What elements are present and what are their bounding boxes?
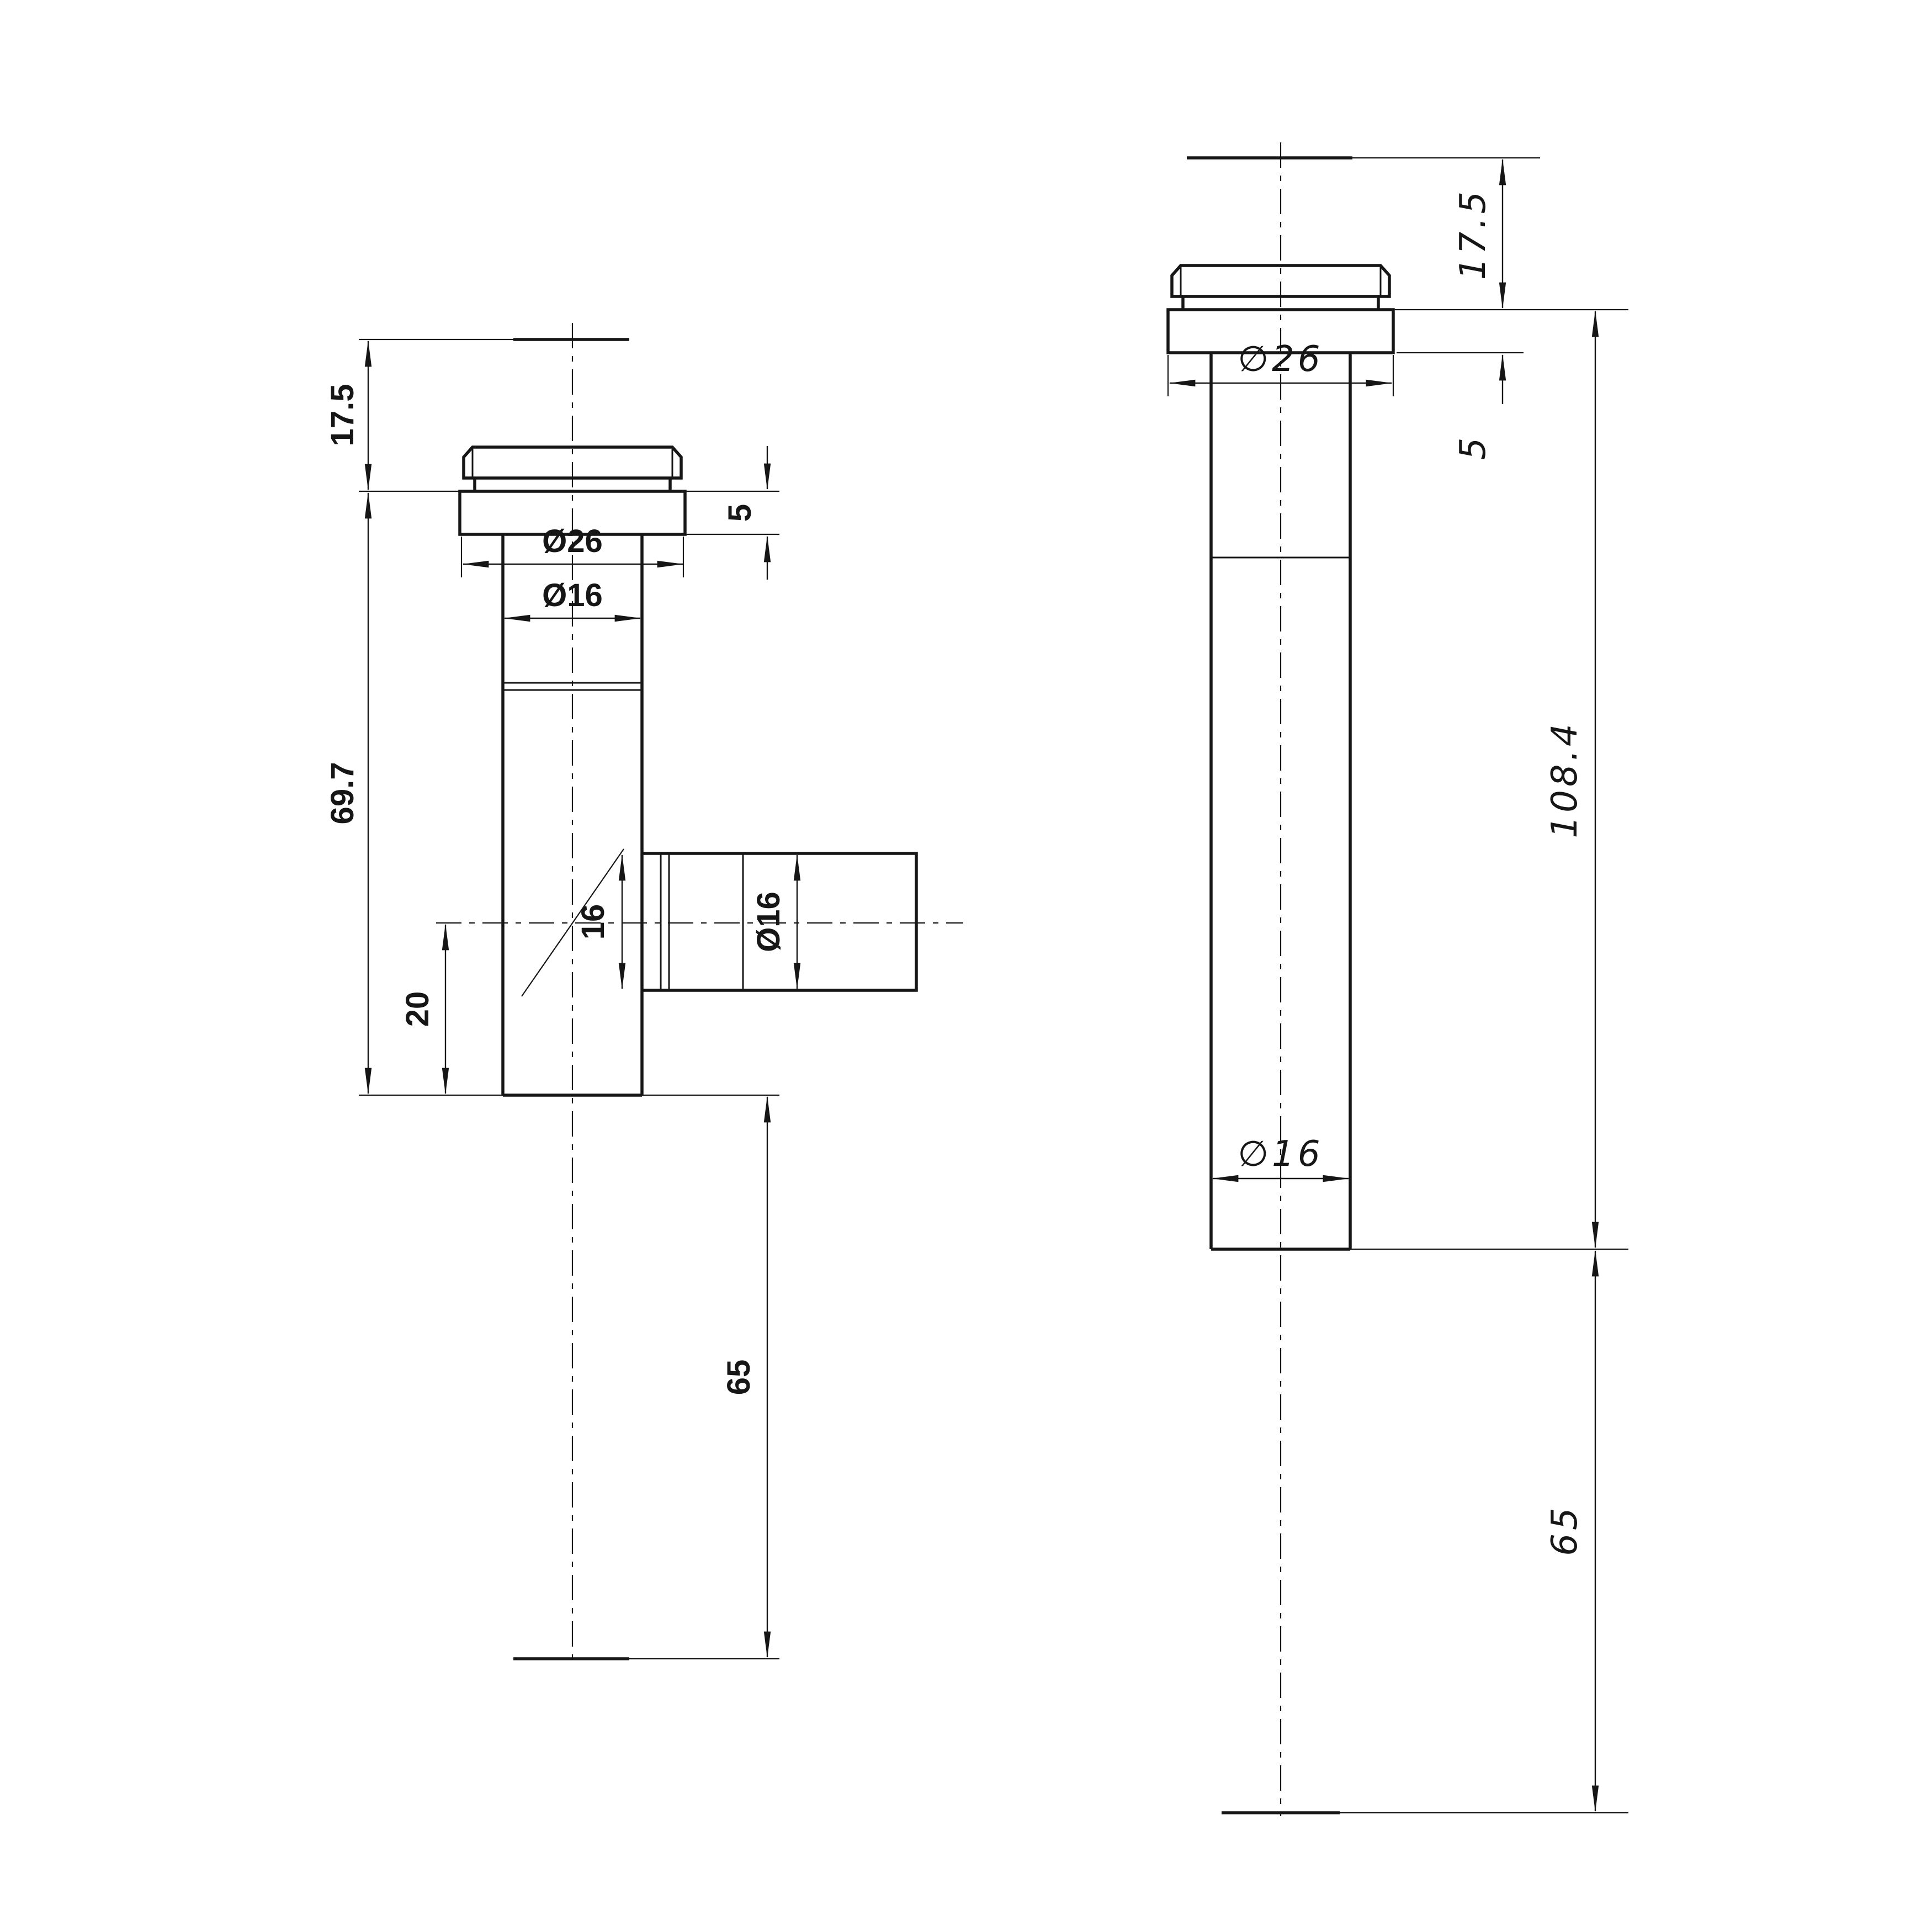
right-dim-flange-diameter-label: ∅26 [1238,339,1323,380]
left-view: 17.5 69.7 5 Ø26 Ø16 16 [325,323,963,1660]
left-dim-branch-diameter-label: Ø16 [751,891,787,952]
technical-drawing-sheet: 17.5 69.7 5 Ø26 Ø16 16 [0,0,1932,1932]
left-dim-flange-thickness-label: 5 [722,504,758,522]
right-dim-flange-thickness: 5 [1453,355,1503,460]
right-dim-cap-height-label: 17.5 [1453,188,1494,280]
right-view: 17.5 5 ∅26 108.4 ∅16 65 [1168,142,1628,1816]
right-dim-tail-length: 65 [1544,1251,1595,1811]
right-dim-flange-diameter: ∅26 [1170,339,1392,383]
left-dim-tail-length-label: 65 [721,1360,757,1395]
left-dim-body-length-label: 69.7 [325,762,360,825]
left-dim-tail-length: 65 [721,1097,767,1657]
right-dim-tube-diameter-label: ∅16 [1238,1134,1323,1175]
left-object-outline [460,339,916,1659]
left-dim-flange-diameter-label: Ø26 [542,523,603,559]
left-dim-tube-diameter: Ø16 [505,577,640,618]
right-dim-overall-length-label: 108.4 [1544,720,1585,838]
right-dim-tail-length-label: 65 [1544,1504,1585,1556]
right-dim-tube-diameter: ∅16 [1213,1134,1349,1179]
left-dim-branch-bore: 16 [575,855,622,989]
left-dim-body-length: 69.7 [325,493,368,1094]
left-dim-branch-diameter: Ø16 [751,855,797,989]
right-dim-flange-thickness-label: 5 [1453,434,1494,460]
right-dim-overall-length: 108.4 [1544,311,1595,1248]
cad-drawing-canvas: 17.5 69.7 5 Ø26 Ø16 16 [0,0,1932,1932]
left-dim-branch-offset-label: 20 [400,991,436,1027]
left-dim-branch-bore-label: 16 [575,904,611,940]
left-dim-cap-height-label: 17.5 [325,384,360,447]
left-dim-flange-thickness: 5 [722,446,767,580]
left-dim-cap-height: 17.5 [325,341,368,490]
right-extension-lines [1168,158,1628,1813]
left-dim-tube-diameter-label: Ø16 [542,577,603,613]
left-dim-branch-offset: 20 [400,925,445,1094]
left-dim-flange-diameter: Ø26 [463,523,683,564]
right-dim-cap-height: 17.5 [1453,160,1503,308]
